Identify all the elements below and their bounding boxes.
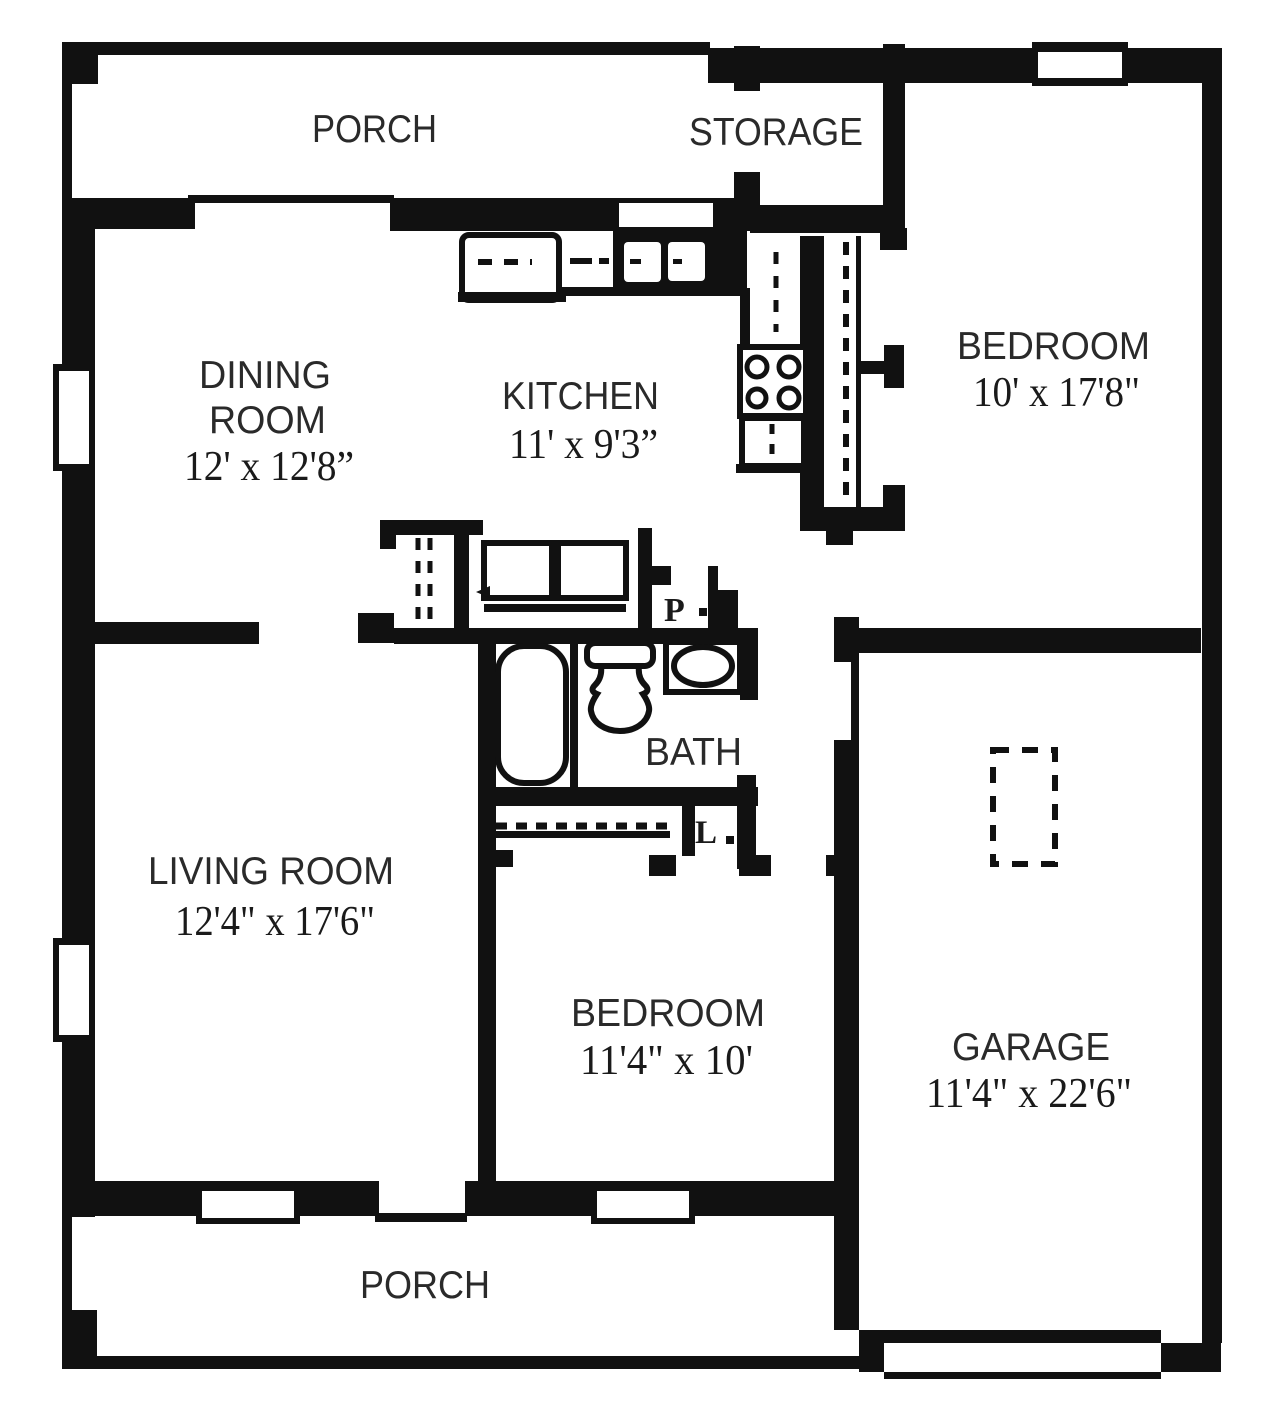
svg-text:KITCHEN: KITCHEN <box>502 375 659 418</box>
svg-text:PORCH: PORCH <box>312 108 437 151</box>
svg-text:BEDROOM: BEDROOM <box>957 325 1150 368</box>
svg-text:12'4" x 17'6": 12'4" x 17'6" <box>175 899 375 945</box>
svg-text:BEDROOM: BEDROOM <box>571 992 765 1035</box>
svg-text:STORAGE: STORAGE <box>689 111 863 154</box>
svg-text:L: L <box>695 815 717 851</box>
svg-text:10' x 17'8": 10' x 17'8" <box>973 370 1140 416</box>
svg-text:LIVING ROOM: LIVING ROOM <box>148 850 394 893</box>
svg-text:GARAGE: GARAGE <box>952 1026 1110 1069</box>
svg-text:11'4" x 22'6": 11'4" x 22'6" <box>926 1071 1132 1117</box>
svg-text:12' x 12'8”: 12' x 12'8” <box>184 444 354 490</box>
svg-text:DINING: DINING <box>199 354 331 397</box>
svg-text:ROOM: ROOM <box>209 399 326 442</box>
svg-text:11'4" x 10': 11'4" x 10' <box>580 1038 753 1084</box>
svg-text:11' x 9'3”: 11' x 9'3” <box>509 422 658 468</box>
svg-text:BATH: BATH <box>645 731 742 774</box>
svg-text:P: P <box>664 592 685 629</box>
svg-text:PORCH: PORCH <box>360 1264 490 1307</box>
